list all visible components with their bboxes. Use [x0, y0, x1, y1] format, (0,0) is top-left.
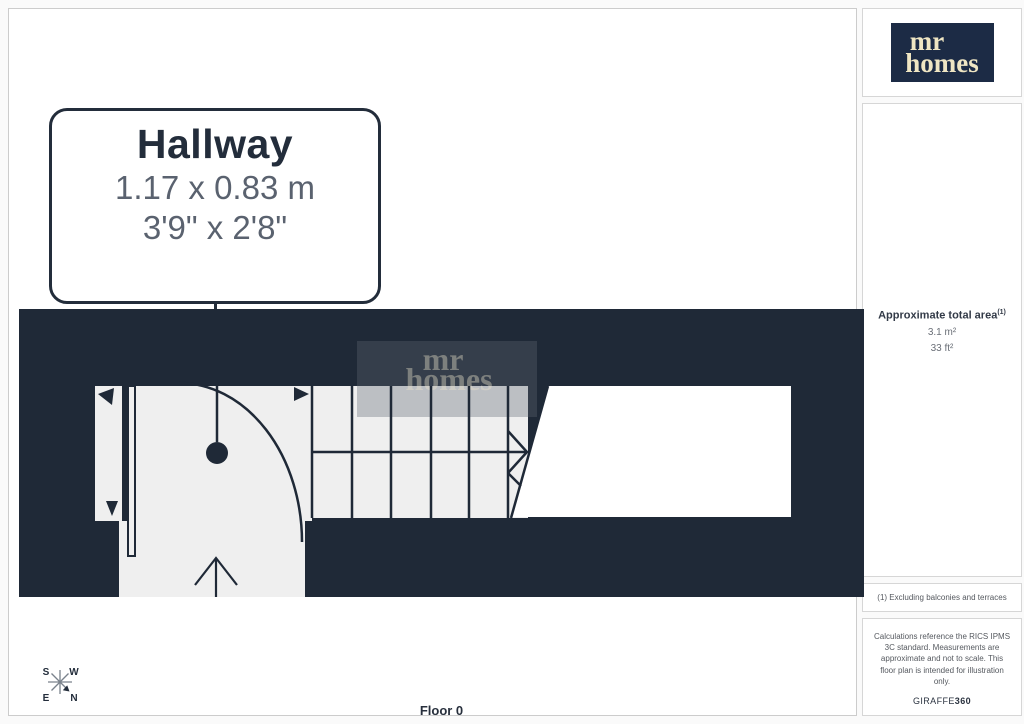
disclaimer-text: Calculations reference the RICS IPMS 3C … — [873, 631, 1011, 687]
total-area-metric: 3.1 m² — [863, 327, 1021, 338]
sidebar-footnote-panel: (1) Excluding balconies and terraces — [862, 583, 1022, 612]
brand-name: GIRAFFE — [913, 696, 955, 706]
room-name: Hallway — [137, 121, 293, 168]
total-area-footnote-marker: (1) — [997, 309, 1006, 316]
sidebar-area-panel: Approximate total area(1) 3.1 m² 33 ft² — [862, 103, 1022, 577]
footnote-text: (1) Excluding balconies and terraces — [877, 593, 1006, 602]
floorplan-drawing: mr homes — [19, 309, 864, 597]
compass-rose: S W E N — [37, 657, 83, 707]
floor-label: Floor 0 — [19, 703, 864, 718]
watermark-logo: mr homes — [357, 341, 537, 417]
logo-line2: homes — [905, 53, 979, 74]
watermark-line2: homes — [405, 361, 492, 397]
room-callout: Hallway 1.17 x 0.83 m 3'9" x 2'8" — [49, 108, 381, 304]
total-area-label: Approximate total area(1) — [863, 309, 1021, 322]
room-size-metric: 1.17 x 0.83 m — [115, 168, 315, 208]
floorplan-page: Hallway 1.17 x 0.83 m 3'9" x 2'8" mr hom… — [0, 0, 1024, 724]
sidebar-logo-panel: mr homes — [862, 8, 1022, 97]
sidebar-disclaimer-panel: Calculations reference the RICS IPMS 3C … — [862, 618, 1022, 716]
compass-w: W — [69, 667, 79, 678]
floorplan-canvas: Hallway 1.17 x 0.83 m 3'9" x 2'8" mr hom… — [8, 8, 857, 716]
door-leaf — [128, 386, 135, 556]
compass-s: S — [43, 667, 50, 678]
mr-homes-logo: mr homes — [891, 23, 994, 82]
brand-suffix: 360 — [955, 696, 971, 706]
giraffe360-brand: GIRAFFE360 — [873, 696, 1011, 706]
room-size-imperial: 3'9" x 2'8" — [143, 208, 287, 248]
stair-cutaway-area — [511, 386, 791, 517]
total-area-imperial: 33 ft² — [863, 343, 1021, 354]
total-area-text: Approximate total area — [878, 310, 997, 322]
